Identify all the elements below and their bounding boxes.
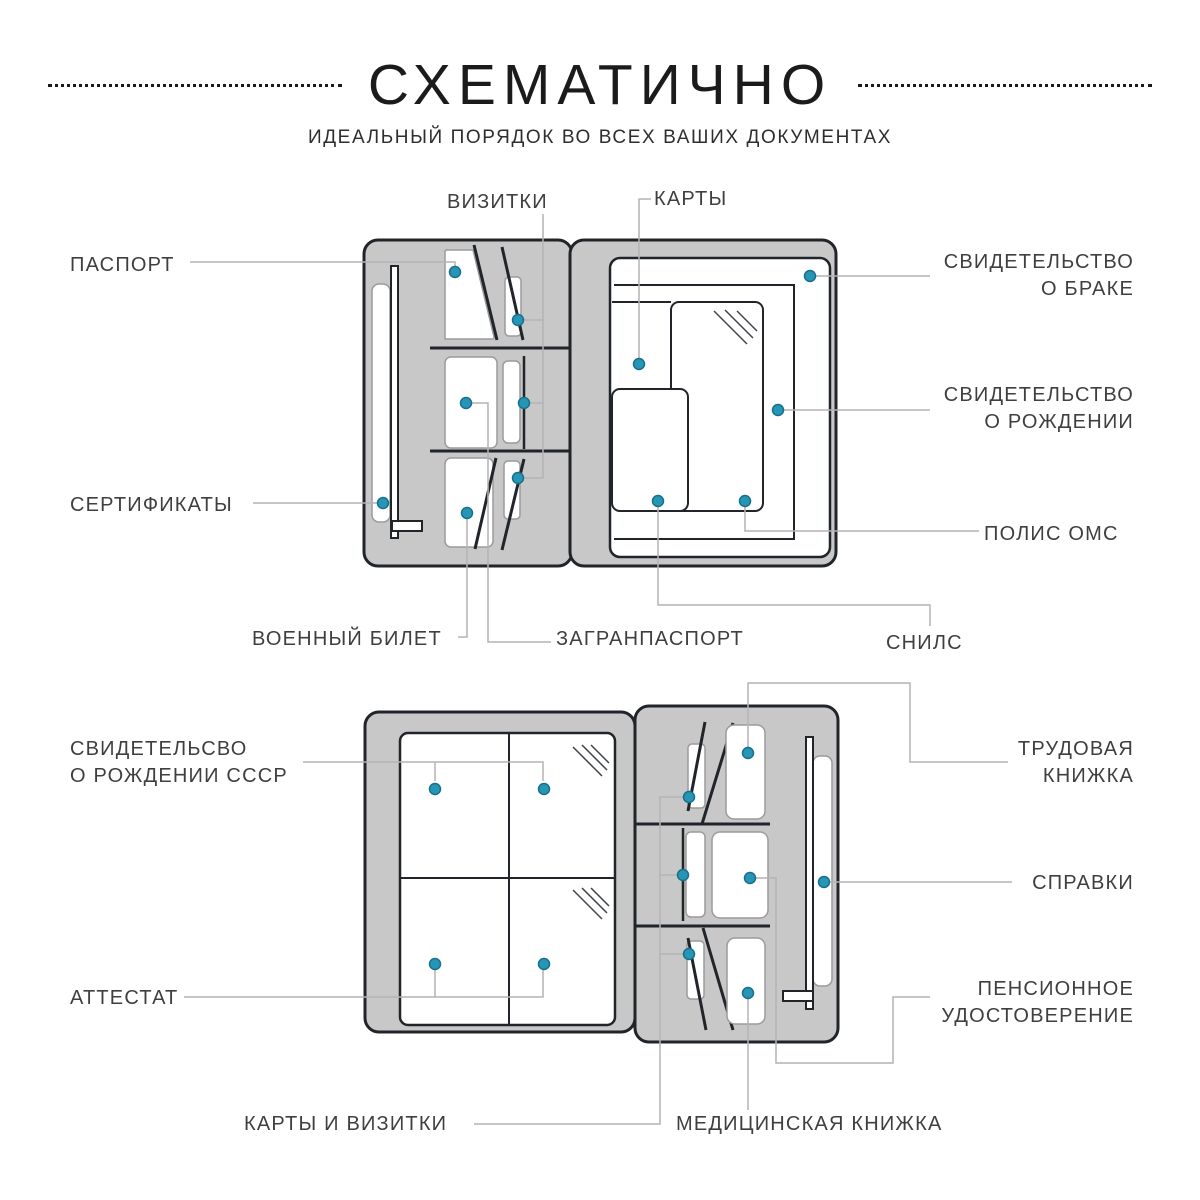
top-organizer-illustration <box>364 240 836 566</box>
label-marriage-certificate: СВИДЕТЕЛЬСТВО О БРАКЕ <box>944 249 1134 303</box>
label-birth-certificate: СВИДЕТЕЛЬСТВО О РОЖДЕНИИ <box>944 382 1134 436</box>
label-ussr-birth-certificate: СВИДЕТЕЛЬСВО О РОЖДЕНИИ СССР <box>70 736 288 790</box>
marker-dot-medical-book <box>743 988 754 999</box>
marker-dot-attestat-1 <box>430 959 441 970</box>
marker-dot-business-cards-2 <box>519 398 530 409</box>
label-spravki: СПРАВКИ <box>1032 870 1134 897</box>
marker-dot-military-id <box>462 508 473 519</box>
label-snils: СНИЛС <box>886 630 963 657</box>
infographic-canvas: СХЕМАТИЧНО ИДЕАЛЬНЫЙ ПОРЯДОК ВО ВСЕХ ВАШ… <box>0 0 1200 1200</box>
marker-dot-business-cards-1 <box>513 315 524 326</box>
marker-dot-attestat-2 <box>539 959 550 970</box>
label-medical-book: МЕДИЦИНСКАЯ КНИЖКА <box>676 1111 943 1138</box>
marker-dot-snils <box>653 496 664 507</box>
marker-dot-polis-oms <box>740 496 751 507</box>
marker-dot-cards <box>634 359 645 370</box>
label-business-cards: ВИЗИТКИ <box>447 189 548 216</box>
marker-dot-certificates <box>378 498 389 509</box>
pension-pocket <box>712 832 768 918</box>
bottom-strap-stick <box>806 737 813 1009</box>
label-attestat: АТТЕСТАТ <box>70 985 178 1012</box>
marker-dot-foreign-passport <box>461 398 472 409</box>
label-cards-and-business-cards: КАРТЫ И ВИЗИТКИ <box>244 1111 447 1138</box>
marker-dot-ussr-2 <box>539 784 550 795</box>
marker-dot-business-cards-3 <box>513 473 524 484</box>
label-work-record-book: ТРУДОВАЯ КНИЖКА <box>1018 736 1134 790</box>
marker-dot-spravki <box>819 877 830 888</box>
marker-dot-cards-business-3 <box>684 949 695 960</box>
label-passport: ПАСПОРТ <box>70 252 175 279</box>
top-strap-stick <box>391 266 398 538</box>
label-military-id: ВОЕННЫЙ БИЛЕТ <box>252 626 442 653</box>
top-strap-bar <box>392 521 422 531</box>
label-foreign-passport: ЗАГРАНПАСПОРТ <box>556 626 744 653</box>
bottom-strap-channel <box>813 756 832 986</box>
card-slot <box>503 361 520 443</box>
marker-dot-marriage-certificate <box>805 271 816 282</box>
snils-pocket <box>612 389 688 511</box>
label-pension-certificate: ПЕНСИОННОЕ УДОСТОВЕРЕНИЕ <box>941 976 1134 1030</box>
label-certificates: СЕРТИФИКАТЫ <box>70 492 233 519</box>
marker-dot-cards-business-2 <box>678 870 689 881</box>
label-polis-oms: ПОЛИС ОМС <box>984 521 1119 548</box>
bottom-strap-bar <box>783 991 813 1001</box>
marker-dot-ussr-1 <box>430 784 441 795</box>
marker-dot-passport <box>450 267 461 278</box>
marker-dot-work-record-book <box>743 748 754 759</box>
bottom-organizer-illustration <box>365 706 838 1042</box>
marker-dot-birth-certificate <box>773 405 784 416</box>
top-strap-channel <box>372 284 390 522</box>
work-book-pocket <box>726 725 765 819</box>
label-cards: КАРТЫ <box>654 186 727 213</box>
marker-dot-cards-business-1 <box>684 792 695 803</box>
medical-book-pocket <box>727 938 765 1024</box>
marker-dot-pension-certificate <box>745 873 756 884</box>
